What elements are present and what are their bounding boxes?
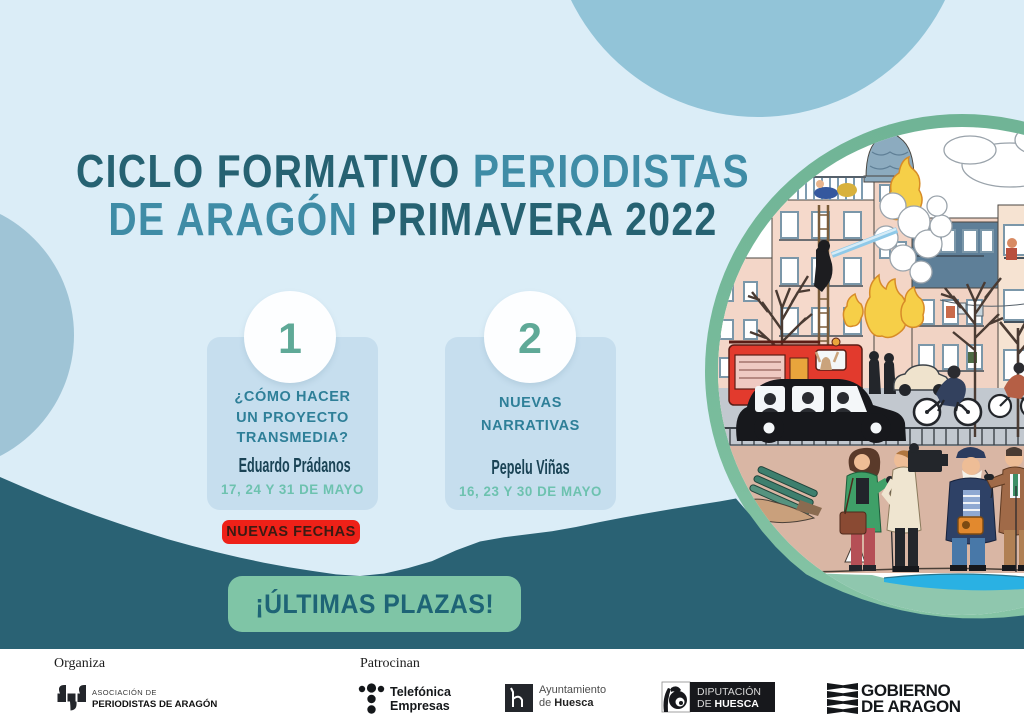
svg-text:DE ARAGON: DE ARAGON: [861, 697, 961, 716]
svg-text:PERIODISTAS DE ARAGÓN: PERIODISTAS DE ARAGÓN: [92, 698, 217, 710]
svg-text:Telefónica: Telefónica: [390, 685, 452, 699]
svg-text:Empresas: Empresas: [390, 699, 450, 713]
svg-text:de Huesca: de Huesca: [539, 697, 594, 709]
svg-text:DE HUESCA: DE HUESCA: [697, 698, 759, 710]
svg-text:Ayuntamiento: Ayuntamiento: [539, 684, 606, 696]
svg-text:ASOCIACIÓN DE: ASOCIACIÓN DE: [92, 688, 157, 697]
svg-text:DIPUTACIÓN: DIPUTACIÓN: [697, 685, 761, 698]
